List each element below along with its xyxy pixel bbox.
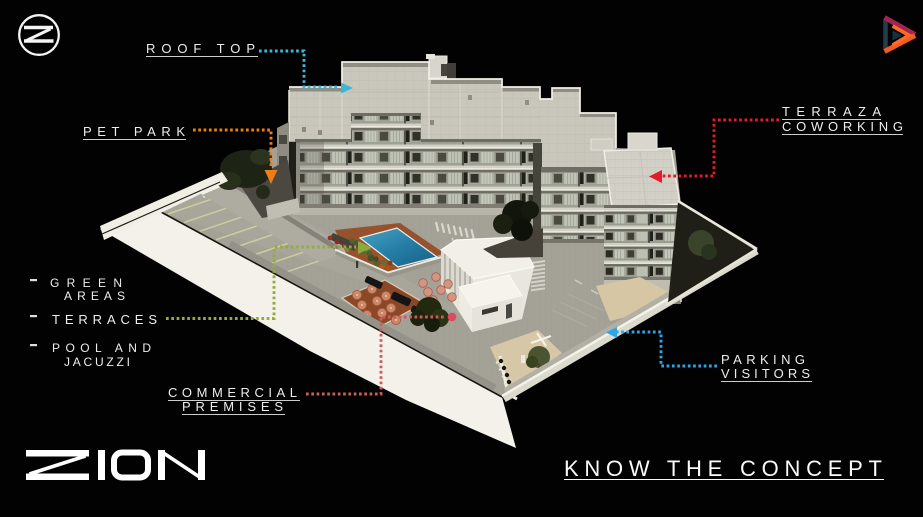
svg-text:COMMERCIAL: COMMERCIAL [168, 385, 297, 400]
svg-text:PREMISES: PREMISES [182, 399, 283, 414]
svg-text:JACUZZI: JACUZZI [64, 355, 130, 369]
svg-text:COWORKING: COWORKING [782, 119, 903, 134]
svg-text:PET PARK: PET PARK [83, 124, 185, 139]
svg-text:ROOF TOP: ROOF TOP [146, 41, 255, 56]
svg-text:VISITORS: VISITORS [721, 366, 810, 381]
